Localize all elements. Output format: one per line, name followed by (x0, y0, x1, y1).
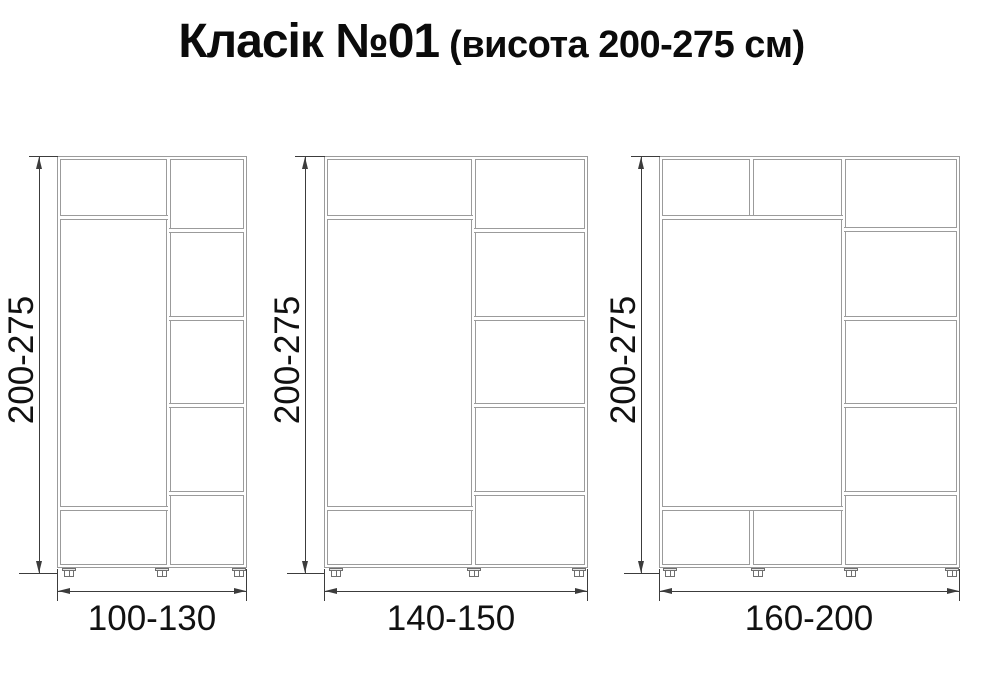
shelf (327, 215, 473, 220)
cab2-height-dimension-label: 200-275 (188, 260, 388, 460)
dimension-arrow-down-icon (302, 561, 308, 573)
cab3-width-dimension-line (660, 591, 959, 592)
cabinet-foot-icon (663, 568, 677, 577)
cabinet-foot-icon (62, 568, 76, 577)
shelf (474, 228, 585, 233)
cab1-width-extension-left (57, 569, 58, 601)
shelf (169, 228, 244, 233)
diagram-canvas: Класік №01 (висота 200-275 см) 200-275 1… (0, 0, 983, 700)
cabinet-foot-icon (751, 568, 765, 577)
shelf (844, 227, 957, 232)
cab3-width-dimension-label: 160-200 (745, 599, 873, 639)
cab3-width-extension-right (959, 569, 960, 601)
dimension-arrow-up-icon (36, 157, 42, 169)
shelf (60, 215, 168, 220)
dimension-arrow-left-icon (660, 588, 672, 594)
cabinet-foot-icon (155, 568, 169, 577)
cab2-height-extension-bottom (287, 573, 325, 574)
cab3-height-extension-bottom (624, 573, 660, 574)
cab3-height-extension-top (631, 156, 660, 157)
dimension-arrow-up-icon (302, 157, 308, 169)
cab2-height-extension-top (295, 156, 325, 157)
cab2-width-extension-left (324, 569, 325, 601)
cab1-height-dimension-label: 200-275 (0, 260, 122, 460)
cab1-height-extension-bottom (19, 573, 58, 574)
dimension-arrow-right-icon (947, 588, 959, 594)
title-height-range: (висота 200-275 см) (439, 24, 805, 66)
cabinet-foot-icon (945, 568, 959, 577)
dimension-arrow-down-icon (638, 561, 644, 573)
bottom-section-divider (749, 509, 754, 565)
cab1-width-extension-right (246, 569, 247, 601)
dimension-arrow-right-icon (234, 588, 246, 594)
cab3-width-extension-left (659, 569, 660, 601)
shelf (844, 316, 957, 321)
shelf (662, 506, 843, 511)
shelf (327, 506, 473, 511)
cab1-height-extension-top (29, 156, 58, 157)
dimension-arrow-left-icon (325, 588, 337, 594)
cabinet-foot-icon (232, 568, 246, 577)
dimension-arrow-left-icon (58, 588, 70, 594)
shelf (474, 491, 585, 496)
cabinet-foot-icon (844, 568, 858, 577)
cabinet-foot-icon (467, 568, 481, 577)
cab3-height-dimension-label: 200-275 (524, 260, 724, 460)
cab2-width-extension-right (587, 569, 588, 601)
dimension-arrow-up-icon (638, 157, 644, 169)
cab2-width-dimension-line (325, 591, 587, 592)
cab1-width-dimension-label: 100-130 (88, 599, 216, 639)
shelf (662, 215, 843, 220)
dimension-arrow-down-icon (36, 561, 42, 573)
shelf (844, 403, 957, 408)
dimension-arrow-right-icon (575, 588, 587, 594)
cab2-width-dimension-label: 140-150 (387, 599, 515, 639)
shelf (60, 506, 168, 511)
cabinet-foot-icon (572, 568, 586, 577)
cab1-width-dimension-line (58, 591, 246, 592)
diagram-title: Класік №01 (висота 200-275 см) (0, 14, 983, 69)
shelf (169, 491, 244, 496)
cabinet-foot-icon (329, 568, 343, 577)
title-model-name: Класік №01 (178, 15, 439, 68)
shelf (844, 491, 957, 496)
top-section-divider (749, 159, 754, 217)
